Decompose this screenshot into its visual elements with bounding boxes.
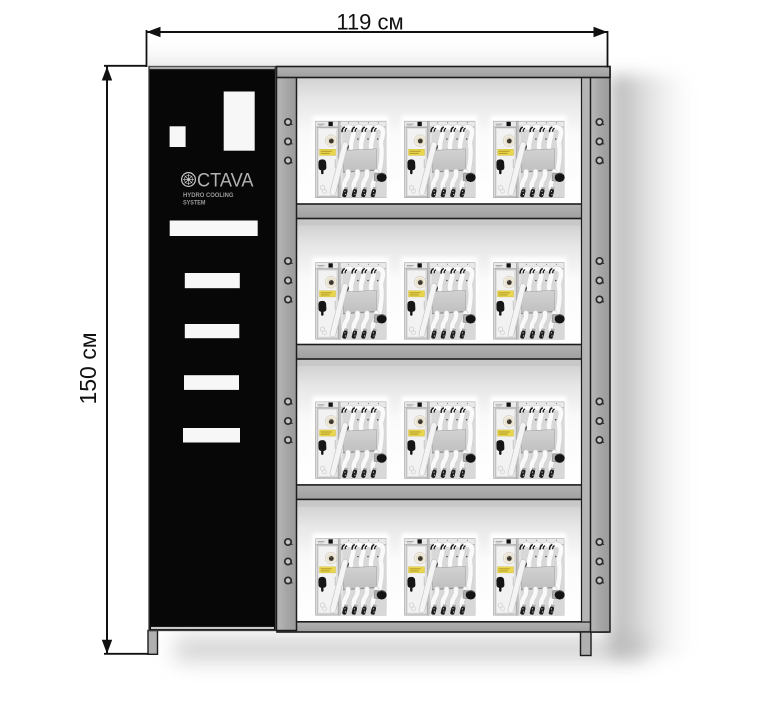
svg-text:HYDRO COOLING: HYDRO COOLING	[183, 192, 234, 199]
svg-text:SYSTEM: SYSTEM	[183, 200, 206, 207]
svg-text:150 см: 150 см	[75, 332, 101, 404]
svg-text:119 см: 119 см	[336, 10, 403, 35]
svg-text:CTAVA: CTAVA	[197, 170, 254, 191]
